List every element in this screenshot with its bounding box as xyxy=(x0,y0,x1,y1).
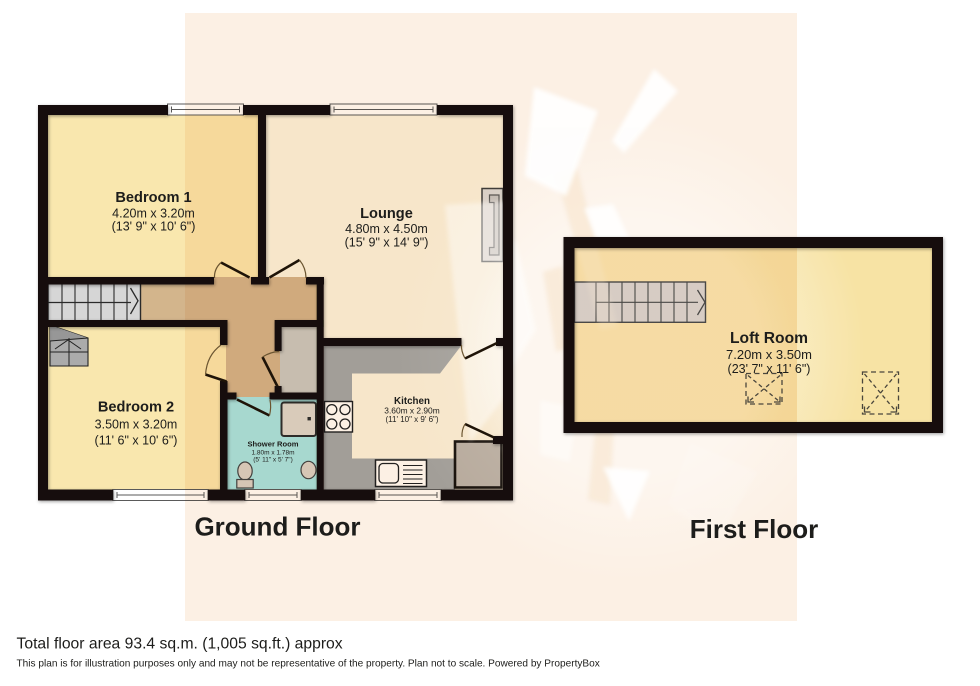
svg-text:(5' 11" x 5' 7"): (5' 11" x 5' 7") xyxy=(253,457,293,464)
svg-text:(13' 9" x 10' 6"): (13' 9" x 10' 6") xyxy=(112,220,196,234)
svg-text:Lounge: Lounge xyxy=(360,206,413,222)
svg-text:Loft Room: Loft Room xyxy=(730,330,808,347)
svg-text:Bedroom 1: Bedroom 1 xyxy=(115,190,191,206)
svg-text:3.50m x 3.20m: 3.50m x 3.20m xyxy=(95,418,178,432)
svg-text:4.80m x 4.50m: 4.80m x 4.50m xyxy=(345,222,428,236)
svg-text:(11' 6" x 10' 6"): (11' 6" x 10' 6") xyxy=(95,434,178,448)
svg-text:1.80m x 1.78m: 1.80m x 1.78m xyxy=(252,450,295,457)
svg-text:First Floor: First Floor xyxy=(690,514,819,544)
svg-text:(11' 10" x 9' 6"): (11' 10" x 9' 6") xyxy=(385,415,438,424)
svg-text:(15' 9" x 14' 9"): (15' 9" x 14' 9") xyxy=(345,236,429,250)
svg-text:This plan is for illustration: This plan is for illustration purposes o… xyxy=(17,659,600,670)
svg-text:(23' 7" x 11' 6"): (23' 7" x 11' 6") xyxy=(728,362,811,376)
svg-text:7.20m x 3.50m: 7.20m x 3.50m xyxy=(726,347,812,362)
svg-text:Shower Room: Shower Room xyxy=(247,440,298,449)
svg-text:Ground Floor: Ground Floor xyxy=(194,512,360,542)
svg-text:Total floor area 93.4 sq.m. (1: Total floor area 93.4 sq.m. (1,005 sq.ft… xyxy=(17,636,343,653)
svg-text:Bedroom 2: Bedroom 2 xyxy=(98,400,174,416)
svg-text:4.20m x 3.20m: 4.20m x 3.20m xyxy=(112,207,195,221)
svg-text:3.60m x 2.90m: 3.60m x 2.90m xyxy=(384,406,439,416)
